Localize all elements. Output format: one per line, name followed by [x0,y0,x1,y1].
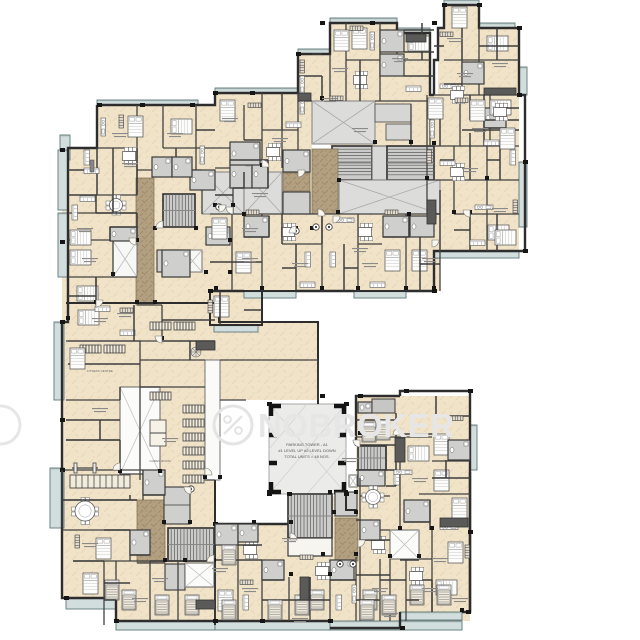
svg-text:NOBROKER: NOBROKER [258,407,455,444]
svg-text:FITNESS CENTRE: FITNESS CENTRE [87,369,113,373]
svg-text:GAMES ROOM: GAMES ROOM [149,459,171,463]
svg-text:#1 LEVEL UP #2 LEVEL DOWN: #1 LEVEL UP #2 LEVEL DOWN [278,448,335,453]
svg-text:TOTAL UNITS = 48 NOS.: TOTAL UNITS = 48 NOS. [284,454,329,459]
